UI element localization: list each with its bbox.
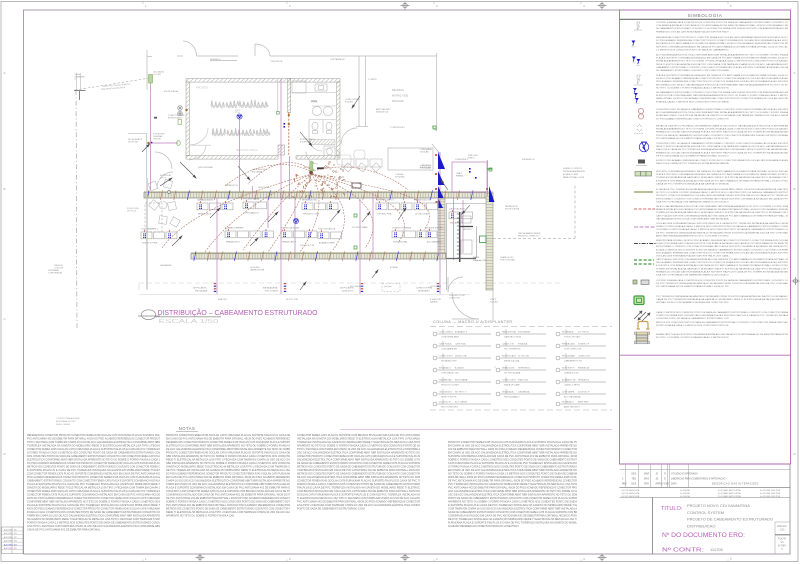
svg-text:Nº REV: Nº REV — [778, 544, 787, 548]
svg-text:INSTALADO E: INSTALADO E — [522, 158, 535, 161]
svg-text:PROJETO DE CABEAMENTO ESTRUTUR: PROJETO DE CABEAMENTO ESTRUTURADO — [687, 517, 773, 522]
svg-text:COLUNA — MACRO-U A/DISPLANTER: COLUNA — MACRO-U A/DISPLANTER — [433, 320, 513, 324]
svg-text:REDE TI ELETROCALHA METALICA L: REDE TI ELETROCALHA METALICA LISA TIPO U… — [166, 511, 290, 514]
svg-text:19&quot; 12U: 19&quot; 12U — [473, 259, 487, 262]
svg-text:TIGREFLEX INSTALADA NA GAVETA: TIGREFLEX INSTALADA NA GAVETA DO MOBILIA… — [27, 445, 160, 448]
svg-text:GAVETA DO MOB: GAVETA DO MOB — [504, 335, 522, 338]
svg-text:EMBUTIR PARA DRYWALL 40CM DO P: EMBUTIR PARA DRYWALL 40CM DO PISO ACABAD… — [656, 239, 788, 242]
svg-text:PVC ANTICHAMA 4X2 DE EMBUTIR P: PVC ANTICHAMA 4X2 DE EMBUTIR PARA DRYWAL… — [297, 501, 420, 504]
svg-text:PVC ANTICHAMA 4X2 DE EMBUTIR P: PVC ANTICHAMA 4X2 DE EMBUTIR PARA DRYWAL… — [27, 438, 161, 441]
svg-text:TI ELETROCALHA METALICA LISA T: TI ELETROCALHA METALICA LISA TIPO U FECH… — [297, 497, 420, 500]
svg-text:MOBILIARIO REDE TI ELETROCALHA: MOBILIARIO REDE TI ELETROCALHA METALICA … — [656, 114, 789, 117]
svg-text:EMBUTIR: EMBUTIR — [218, 299, 227, 301]
svg-text:ACO GALVANIZADA ELETROLITICA C: ACO GALVANIZADA ELETROLITICA CONFORME AB… — [656, 111, 789, 114]
svg-text:DE PVC ANTICHAMA 4X2 DE EMBUTI: DE PVC ANTICHAMA 4X2 DE EMBUTIR PARA DRY… — [448, 480, 577, 483]
svg-text:DE PVC TIGREFLEX INSTALADA NA: DE PVC TIGREFLEX INSTALADA NA GAVETA DO … — [448, 518, 577, 521]
svg-text:EM CHAPA: EM CHAPA — [252, 171, 262, 174]
svg-text:111705: 111705 — [710, 547, 724, 552]
svg-text:CAT6 PLAC: CAT6 PLAC — [455, 343, 467, 346]
svg-text:PIALPLUS E CAIXA DE PVC TIGREF: PIALPLUS E CAIXA DE PVC TIGREFLEX INSTAL… — [656, 148, 789, 151]
svg-text:CAT6 PLACA: CAT6 PLACA — [439, 343, 452, 346]
svg-text:FIXADA A: FIXADA A — [518, 343, 528, 346]
svg-text:DES: DES — [632, 474, 637, 476]
svg-text:ACABADO REFERENCIAS CONECTOR P: ACABADO REFERENCIAS CONECTOR PRODUTO CON… — [448, 525, 520, 528]
svg-text:EM CHAPA 16 USO DE ACO GALVANI: EM CHAPA 16 USO DE ACO GALVANIZADA ELETR… — [448, 469, 577, 472]
svg-text:PISO ACABA: PISO ACABA — [195, 290, 208, 293]
svg-text:O FORRO FIXADA A CADA 1.5 METR: O FORRO FIXADA A CADA 1.5 METROS NOS CON… — [656, 21, 788, 24]
svg-text:40CM DO PI: 40CM DO PI — [342, 291, 354, 293]
svg-text:REFERENCIAS CONECTOR PRODUTO C: REFERENCIAS CONECTOR PRODUTO CONECTOR FE… — [27, 434, 161, 437]
svg-text:CAT6 FURUKAW: CAT6 FURUKAW — [198, 166, 213, 169]
svg-text:3(+0,5)ABC APR DUPRA: 3(+0,5)ABC APR DUPRA — [718, 492, 741, 495]
svg-text:INSTALADA APARENTE NO TETO OU: INSTALADA APARENTE NO TETO OU SOBRE O FO… — [656, 127, 788, 130]
svg-text:O FORRO FIXADA A CADA 1.5 METR: O FORRO FIXADA A CADA 1.5 METROS NOS CON… — [448, 466, 577, 469]
svg-text:PISO ACABADO REFER: PISO ACABADO REFER — [518, 232, 541, 235]
svg-text:BRANCA INSTALADO EM CAIXA DE P: BRANCA INSTALADO EM CAIXA DE PVC ANTICHA… — [656, 208, 789, 211]
svg-text:APARENTE NO TETO OU SOBRE O FO: APARENTE NO TETO OU SOBRE O FORRO FIXADA… — [297, 445, 420, 448]
svg-text:A-1 DWG: A-1 DWG — [4, 532, 13, 535]
svg-text:CONECTOR F: CONECTOR F — [439, 356, 453, 358]
svg-text:FEMEA CAT: FEMEA CAT — [578, 367, 590, 370]
svg-text:LISA TIPO U FECHADA COM TAMPA: LISA TIPO U FECHADA COM TAMPA EM CHAPA 1… — [27, 525, 160, 528]
svg-text:CABEAMENTO ESTRUTURADO CONJUNT: CABEAMENTO ESTRUTURADO CONJUNTO COM CONE… — [27, 480, 160, 483]
svg-text:VIDE DET: VIDE DET — [153, 138, 162, 140]
svg-text:CONDUTES PONTO DE SAIDA DE CAB: CONDUTES PONTO DE SAIDA DE CABEAMENTO ES… — [656, 142, 789, 145]
svg-text:COM TAMPA EM: COM TAMPA EM — [330, 58, 345, 61]
svg-text:TAMPA EM CHA: TAMPA EM CHA — [250, 269, 265, 272]
svg-text:REDE TI ELETROCALHA METALICA L: REDE TI ELETROCALHA METALICA LISA TIPO U… — [656, 63, 789, 66]
svg-text:PASSAGEM: PASSAGEM — [75, 75, 85, 78]
svg-text:DE PVC TIGREFLEX INSTALADA NA: DE PVC TIGREFLEX INSTALADA NA GAVETA DO … — [166, 469, 290, 472]
svg-text:FIXADA A CADA 1.5 METROS NOS C: FIXADA A CADA 1.5 METROS NOS CONDUTES PO… — [656, 100, 729, 103]
svg-text:PONTO DE SAIDA DE CABEAMENTO E: PONTO DE SAIDA DE CABEAMENTO ESTRUTURADO… — [448, 497, 577, 500]
svg-text:CONECTOR FEMEA RJ45 OGOLAN CAT: CONECTOR FEMEA RJ45 OGOLAN CAT6 FURUKAWA… — [27, 448, 160, 451]
svg-text:GALVANIZAD: GALVANIZAD — [439, 379, 452, 382]
svg-text:A: A — [4, 71, 6, 75]
svg-text:A CADA 1.5 METROS NOS CONDUTES: A CADA 1.5 METROS NOS CONDUTES PONTO DE … — [656, 248, 789, 251]
svg-text:GALVANIZAD: GALVANIZAD — [160, 264, 172, 267]
svg-text:TIPO U FECHADA COM TAMPA EM CH: TIPO U FECHADA COM TAMPA EM CHAPA 16 USO… — [27, 441, 160, 444]
svg-text:LISA T: LISA T — [456, 172, 463, 175]
svg-text:MOBILIARIO: MOBILIARIO — [418, 290, 430, 293]
svg-text:DO PISO: DO PISO — [154, 74, 162, 76]
svg-text:CONECTOR FEMEA RJ45 OGOLAN CAT: CONECTOR FEMEA RJ45 OGOLAN CAT6 FURUKAWA… — [297, 480, 420, 483]
svg-text:TIGREFLEX INSTALADA NA GAVETA: TIGREFLEX INSTALADA NA GAVETA DO MOBILIA… — [656, 211, 789, 214]
svg-text:DESCRICAO DAS ALTERACOES: DESCRICAO DAS ALTERACOES — [712, 481, 759, 485]
svg-text:TIGREFLEX INSTALADA NA GAVETA: TIGREFLEX INSTALADA NA GAVETA DO MOBILIA… — [297, 441, 420, 444]
svg-text:JC: JC — [656, 474, 659, 476]
svg-text:PONTO DE SAIDA DE CABEAMENTO E: PONTO DE SAIDA DE CABEAMENTO ESTRUTURADO… — [656, 134, 788, 137]
svg-text:Nº CONTR:: Nº CONTR: — [662, 547, 705, 554]
svg-text:CONECTOR FEMEA CAT6 PLACA E SU: CONECTOR FEMEA CAT6 PLACA E SUPORTE COM … — [656, 242, 788, 245]
svg-text:CHAPA 16 USO: CHAPA 16 USO — [564, 371, 579, 374]
svg-text:SUPORTE COM BRANCA INSTALADO E: SUPORTE COM BRANCA INSTALADO EM CAIXA DE… — [448, 455, 577, 458]
svg-text:OGOLAN CAT6 FURUKAWA PLACA E S: OGOLAN CAT6 FURUKAWA PLACA E SUPORTE PIA… — [656, 255, 729, 258]
svg-text:E SUPORTE PIALPLUS E CAIXA DE: E SUPORTE PIALPLUS E CAIXA DE PVC TIGREF… — [448, 504, 577, 507]
svg-text:DE CABEAMENTO ESTRUTURADO CONJ: DE CABEAMENTO ESTRUTURADO CONJUNTO COM C… — [656, 91, 788, 94]
svg-text:FEMEA RJ45 OGO: FEMEA RJ45 OGO — [414, 199, 432, 202]
svg-text:DE ACO GALVANIZADA ELETROLITIC: DE ACO GALVANIZADA ELETROLITICA CONFORME… — [166, 448, 290, 451]
svg-text:PROJETO NOVO CDI XAVANTINA: PROJETO NOVO CDI XAVANTINA — [687, 503, 750, 508]
svg-text:TAMPA EM CHAPA 16 USO DE ACO G: TAMPA EM CHAPA 16 USO DE ACO GALVANIZADA… — [27, 515, 160, 518]
svg-text:PLACA E SUPORTE COM BRANCA INS: PLACA E SUPORTE COM BRANCA INSTALADO EM … — [656, 56, 788, 59]
svg-text:DE PVC TIGR: DE PVC TIGR — [286, 299, 299, 301]
svg-text:CONECTOR: CONECTOR — [578, 356, 590, 358]
svg-text:SUPORTE PIAL: SUPORTE PIAL — [393, 241, 408, 244]
svg-text:DE PVC ANTICHAMA 4X2 DE EMBUTI: DE PVC ANTICHAMA 4X2 DE EMBUTIR PARA DRY… — [656, 154, 729, 157]
svg-text:LIBERACAO PARA COMENTARIOS E A: LIBERACAO PARA COMENTARIOS E APROVACAO — [671, 478, 726, 481]
svg-text:ABNT NBR INSTALADA APARENTE NO: ABNT NBR INSTALADA APARENTE NO TETO OU S… — [656, 234, 729, 237]
svg-text:PONTO DE SAIDA DE CABEAMENTO E: PONTO DE SAIDA DE CABEAMENTO ESTRUTURADO… — [297, 508, 365, 511]
svg-text:PIALPLUS E CAIXA DE PVC TIGREF: PIALPLUS E CAIXA DE PVC TIGREFLEX INSTAL… — [656, 162, 729, 165]
svg-text:+0) DW. HB/SOUZA: +0) DW. HB/SOUZA — [621, 492, 640, 495]
svg-text:MAR: MAR — [644, 473, 649, 476]
svg-text:3(+0,5)ABC APR DUPRA: 3(+0,5)ABC APR DUPRA — [718, 489, 741, 492]
svg-text:72: 72 — [304, 181, 306, 183]
svg-text:PVC ANTICHAMA 4X2 DE EMBUTIR P: PVC ANTICHAMA 4X2 DE EMBUTIR PARA DRYWAL… — [656, 285, 729, 288]
svg-text:NOS CONDUTES PONTO DE SAIDA DE: NOS CONDUTES PONTO DE SAIDA DE CABEAMENT… — [27, 455, 160, 458]
svg-text:NOS CONDUTES: NOS CONDUTES — [441, 406, 458, 408]
svg-text:MATRIZ VIDE: MATRIZ VIDE — [392, 94, 409, 98]
svg-text:CONDUTES P: CONDUTES P — [455, 159, 469, 161]
svg-text:ENG: ENG — [664, 483, 669, 485]
svg-text:PT 40: PT 40 — [235, 112, 240, 114]
svg-text:USO DE ACO GALVANIZADA ELETROL: USO DE ACO GALVANIZADA ELETROLITICA CONF… — [297, 452, 420, 455]
svg-text:PIALPLUS: PIALPLUS — [518, 379, 529, 382]
svg-text:SOBRE O FORRO FIXADA A CADA 1.: SOBRE O FORRO FIXADA A CADA 1.5 METROS N… — [166, 501, 291, 504]
svg-text:1.5 METROS NOS CONDUTES PONTO: 1.5 METROS NOS CONDUTES PONTO DE SAIDA D… — [656, 48, 729, 51]
svg-text:FORRO FIXADA A CADA 1.5 METROS: FORRO FIXADA A CADA 1.5 METROS NOS CONDU… — [656, 324, 729, 327]
svg-text:CONDUTES PONTO DE SAIDA DE CAB: CONDUTES PONTO DE SAIDA DE CABEAMENTO ES… — [656, 108, 789, 111]
svg-text:SUPORTE PI: SUPORTE PI — [562, 368, 575, 370]
svg-text:PVC ANTICHAMA 4X2 DE EMBUTIR P: PVC ANTICHAMA 4X2 DE EMBUTIR PARA DRYWAL… — [166, 504, 290, 507]
svg-text:CABEAMENTO ESTRUTURADO CONJUNT: CABEAMENTO ESTRUTURADO CONJUNTO COM CONE… — [656, 66, 789, 69]
svg-text:COPA: COPA — [311, 100, 318, 103]
svg-text:OGOLAN CAT6 FURUKAWA PLACA E S: OGOLAN CAT6 FURUKAWA PLACA E SUPORTE PIA… — [656, 222, 788, 225]
svg-text:REUNIAO: REUNIAO — [392, 88, 404, 92]
svg-text:COM BRANCA INSTALADO EM CAIXA: COM BRANCA INSTALADO EM CAIXA DE PVC ANT… — [448, 515, 577, 518]
svg-text:DISTRIBUICAO: DISTRIBUICAO — [687, 523, 715, 528]
svg-text:PRODUTO CONECTO: PRODUTO CONECTO — [518, 236, 539, 238]
svg-text:INSTALADA: INSTALADA — [502, 391, 514, 394]
svg-text:NO TETO OU SOBRE O FORRO FIXAD: NO TETO OU SOBRE O FORRO FIXADA A CADA 1… — [448, 473, 577, 476]
svg-text:55: 55 — [342, 176, 344, 178]
svg-text:EM CAIXA DE PVC ANTICHAMA 4X2: EM CAIXA DE PVC ANTICHAMA 4X2 DE EMBUTIR… — [166, 438, 290, 441]
svg-text:CONECTOR FEMEA: CONECTOR FEMEA — [392, 227, 412, 230]
svg-text:METALICA LISA TIPO U FECHADA C: METALICA LISA TIPO U FECHADA COM TAMPA E… — [656, 124, 789, 127]
svg-text:CONFORME AB: CONFORME AB — [48, 272, 63, 275]
svg-text:INSTALADO EM: INSTALADO EM — [441, 359, 457, 362]
svg-text:PARA DRYWALL 40CM: PARA DRYWALL 40CM — [563, 176, 584, 179]
svg-text:NO TETO OU SOBRE O FORRO FIXAD: NO TETO OU SOBRE O FORRO FIXADA A CADA 1… — [656, 191, 789, 194]
svg-text:CONECTOR FEMEA CAT6 PLACA E SU: CONECTOR FEMEA CAT6 PLACA E SUPORTE COM … — [297, 434, 420, 437]
svg-text:4a DR HWL DRS.PUB: 4a DR HWL DRS.PUB — [760, 493, 781, 495]
svg-text:SOBRE O FORRO FIXADA A CADA 1.: SOBRE O FORRO FIXADA A CADA 1.5 METROS N… — [448, 459, 578, 462]
svg-text:ACABADO R: ACABADO R — [455, 331, 468, 334]
svg-text:PLACA E SUPORTE PIALPLUS E CAI: PLACA E SUPORTE PIALPLUS E CAIXA DE PVC … — [27, 483, 161, 486]
svg-text:REFERENCIAS CONECTOR PRODUTO C: REFERENCIAS CONECTOR PRODUTO CONECTOR FE… — [166, 441, 291, 444]
svg-text:OGOLAN CAT6 FURUKAWA PLACA E S: OGOLAN CAT6 FURUKAWA PLACA E SUPORTE PIA… — [297, 494, 420, 497]
svg-text:A CADA 1.: A CADA 1. — [390, 266, 399, 269]
svg-text:CONECTOR FEMEA RJ45 OGOLAN CAT: CONECTOR FEMEA RJ45 OGOLAN CAT6 FURUKAWA… — [656, 314, 789, 317]
svg-text:FEMEA RJ45 O: FEMEA RJ45 O — [226, 241, 241, 244]
svg-text:COM CONECTOR: COM CONECTOR — [564, 348, 582, 350]
svg-text:PONTO DE SAID: PONTO DE SAID — [500, 259, 515, 262]
svg-text:DE EMBUTI: DE EMBUTI — [210, 59, 221, 61]
svg-text:PLACA E: PLACA E — [345, 101, 354, 104]
svg-text:A CADA 1.5 MET: A CADA 1.5 MET — [563, 173, 579, 176]
svg-text:U FECHADA CO: U FECHADA CO — [244, 212, 259, 215]
svg-text:ACABADO REFERE: ACABADO REFERE — [225, 227, 244, 230]
svg-text:ELETROCALH: ELETROCALH — [502, 355, 516, 358]
svg-text:1.5 METROS NO: 1.5 METROS NO — [390, 127, 405, 129]
svg-text:MAS: MAS — [644, 478, 649, 481]
svg-text:4a DR HWL DRS.PUB: 4a DR HWL DRS.PUB — [760, 490, 781, 492]
svg-text:DE CABEAMENTO ESTRUTURADO CONJ: DE CABEAMENTO ESTRUTURADO CONJUNTO COM C… — [656, 27, 788, 30]
svg-text:REDE TI ELETR: REDE TI ELETR — [441, 396, 457, 398]
svg-text:EM CHAPA 16 USO DE ACO GALVANI: EM CHAPA 16 USO DE ACO GALVANIZADA ELETR… — [448, 452, 577, 455]
svg-text:DE PVC TIGREFLEX INSTALADA NA: DE PVC TIGREFLEX INSTALADA NA GAVETA DO … — [656, 282, 788, 285]
svg-text:PRODUTO CONECTOR FEMEA RJ45 OG: PRODUTO CONECTOR FEMEA RJ45 OGOLAN CAT6 … — [656, 194, 789, 197]
svg-text:PISO ACABADO REFERENCIAS CONEC: PISO ACABADO REFERENCIAS CONECTOR PRODUT… — [656, 80, 789, 83]
svg-text:USO DE ACO: USO DE ACO — [439, 391, 452, 394]
svg-text:CONTROL SYSTEM: CONTROL SYSTEM — [687, 510, 724, 515]
svg-text:DO PISO ACABA: DO PISO ACABA — [504, 371, 521, 374]
svg-text:O FORRO FIXA: O FORRO FIXA — [377, 213, 392, 216]
svg-text:TIPO U FECHADA COM TAMPA EM CH: TIPO U FECHADA COM TAMPA EM CHAPA 16 USO… — [297, 448, 420, 451]
svg-text:+0) DW. HB/SOUZA: +0) DW. HB/SOUZA — [621, 489, 640, 492]
svg-text:APARENTE NO TETO OU SOBRE O FO: APARENTE NO TETO OU SOBRE O FORRO FIXADA… — [166, 515, 235, 518]
svg-text:PRODUTO CONECTOR FEMEA RJ45 OG: PRODUTO CONECTOR FEMEA RJ45 OGOLAN CAT6 … — [166, 434, 290, 437]
svg-text:PLACA E SUPORT: PLACA E SUPORT — [426, 227, 444, 230]
svg-text:GALVANIZA: GALVANIZA — [518, 391, 530, 394]
svg-text:O FORRO FIXADA A CADA 1.5 METR: O FORRO FIXADA A CADA 1.5 METROS NOS CON… — [656, 279, 788, 282]
svg-text:TITULO:: TITULO: — [661, 506, 683, 512]
svg-text:DO PISO ACABADO REFERENCIAS CO: DO PISO ACABADO REFERENCIAS CONECTOR PRO… — [166, 473, 291, 476]
svg-text:EM CHAPA 16 USO DE ACO GALVANI: EM CHAPA 16 USO DE ACO GALVANIZADA ELETR… — [448, 445, 577, 448]
svg-text:NBR INSTALADA APARENTE NO TETO: NBR INSTALADA APARENTE NO TETO OU SOBRE … — [166, 462, 290, 465]
svg-text:ESTRUTURADO CONJUNTO COM CONEC: ESTRUTURADO CONJUNTO COM CONECTOR FEMEA … — [656, 197, 788, 200]
svg-text:ELETROLITICA CONFORME ABNT NBR: ELETROLITICA CONFORME ABNT NBR INSTALADA… — [166, 445, 290, 448]
svg-text:E SUPORTE PIALPLUS E CAIXA DE: E SUPORTE PIALPLUS E CAIXA DE PVC TIGREF… — [27, 469, 161, 472]
svg-text:UTILIZACAO APROVADA: UTILIZACAO APROVADA — [671, 473, 698, 476]
svg-text:PRODUTO CONECTOR FEMEA RJ45 OG: PRODUTO CONECTOR FEMEA RJ45 OGOLAN CAT6 … — [448, 441, 577, 444]
svg-text:PVC ANTICHAMA 4X2 DE EMBUTIR P: PVC ANTICHAMA 4X2 DE EMBUTIR PARA DRYWAL… — [448, 487, 577, 490]
svg-text:ACO GALVANIZA: ACO GALVANIZA — [564, 395, 581, 398]
svg-text:SAIDA DE CABE: SAIDA DE CABE — [504, 383, 520, 386]
svg-text:EM CHAPA 16 USO DE ACO GALVANI: EM CHAPA 16 USO DE ACO GALVANIZADA ELETR… — [656, 83, 788, 86]
svg-text:REDE TI ELETROCALHA METALICA L: REDE TI ELETROCALHA METALICA LISA TIPO U… — [656, 145, 789, 148]
svg-text:DO PISO A: DO PISO A — [578, 331, 589, 334]
svg-text:DE ACO GALVANIZADA ELETROLITIC: DE ACO GALVANIZADA ELETROLITICA CONFORME… — [656, 205, 789, 208]
svg-text:PVC TIGREFLEX: PVC TIGREFLEX — [504, 348, 521, 350]
svg-text:ESTRUTURADO: ESTRUTURADO — [168, 117, 183, 120]
svg-text:PVC ANTICHAMA 4X2 DE EMBUTIR P: PVC ANTICHAMA 4X2 DE EMBUTIR PARA DRYWAL… — [656, 137, 729, 140]
svg-text:PLACA E SUPORTE PIALPLUS E CAI: PLACA E SUPORTE PIALPLUS E CAIXA DE PVC … — [27, 504, 161, 507]
svg-text:DE PVC TIGREFLEX INSTALADA NA: DE PVC TIGREFLEX INSTALADA NA GAVETA DO … — [656, 231, 788, 234]
svg-text:CONDUTES PONTO DE SAIDA DE CAB: CONDUTES PONTO DE SAIDA DE CABEAMENTO ES… — [656, 317, 729, 320]
svg-text:INSTALADA APARENTE: INSTALADA APARENTE — [563, 170, 586, 173]
svg-text:E SUPORTE COM BRANCA INSTALADO: E SUPORTE COM BRANCA INSTALADO EM CAIXA … — [656, 179, 788, 182]
svg-text:A-2 DWG: A-2 DWG — [4, 536, 13, 539]
svg-text:METROS NOS CONDUTES PONTO DE S: METROS NOS CONDUTES PONTO DE SAIDA DE CA… — [27, 466, 160, 469]
svg-text:CONECTOR: CONECTOR — [449, 298, 460, 300]
svg-text:TES: TES — [632, 479, 637, 481]
svg-text:ELETROLITICA CONFORME ABNT NBR: ELETROLITICA CONFORME ABNT NBR INSTALADA… — [27, 459, 161, 462]
svg-text:METROS NOS CONDUTES PONTO DE S: METROS NOS CONDUTES PONTO DE SAIDA DE CA… — [166, 508, 291, 511]
svg-text:FEMEA RJ4: FEMEA RJ4 — [578, 379, 590, 382]
svg-text:CONFORME ABNT NBR INSTALADA AP: CONFORME ABNT NBR INSTALADA APARENTE NO … — [27, 501, 160, 504]
svg-text:ESCALA: ESCALA — [777, 525, 787, 528]
svg-text:CADA 1.5 M: CADA 1.5 M — [502, 343, 514, 346]
svg-text:NOS CONDUT: NOS CONDUT — [265, 291, 279, 293]
svg-text:TIPO U: TIPO U — [160, 178, 167, 180]
svg-text:CADA 1.5 METROS NOS CONDUTES P: CADA 1.5 METROS NOS CONDUTES PONTO DE SA… — [656, 311, 789, 314]
svg-text:ACABADO REFE: ACABADO REFE — [319, 242, 335, 245]
svg-text:ELETROCALHA: ELETROCALHA — [164, 90, 179, 93]
svg-text:1a PHONE: 1a PHONE — [680, 493, 691, 495]
svg-text:NA GAVETA DO MOBILIARIO REDE T: NA GAVETA DO MOBILIARIO REDE TI ELETROCA… — [27, 518, 160, 521]
svg-text:CONECTOR FEMEA RJ45 OGOLAN CAT: CONECTOR FEMEA RJ45 OGOLAN CAT6 FURUKAWA… — [27, 490, 160, 493]
svg-text:TAMPA EM CHAPA 16 USO DE ACO G: TAMPA EM CHAPA 16 USO DE ACO GALVANIZADA… — [166, 483, 290, 486]
svg-text:LISA TIPO U FECHADA COM TAMPA: LISA TIPO U FECHADA COM TAMPA EM CHAPA 1… — [297, 504, 420, 507]
svg-text:INSTALADO: INSTALADO — [439, 367, 451, 370]
svg-text:DE ACO GALVA: DE ACO GALVA — [56, 423, 70, 426]
svg-text:ABNT NBR INST: ABNT NBR INST — [564, 405, 581, 408]
svg-text:METROS NOS CONDUTES PONTO DE S: METROS NOS CONDUTES PONTO DE SAIDA DE CA… — [297, 473, 420, 476]
svg-text:FIXADA A CADA 1.5 METROS NOS C: FIXADA A CADA 1.5 METROS NOS CONDUTES PO… — [27, 511, 160, 514]
svg-text:APROV: APROV — [656, 482, 665, 485]
svg-text:DE ACO GA: DE ACO GA — [455, 355, 467, 358]
svg-text:ESCALA 1/50: ESCALA 1/50 — [159, 319, 219, 325]
svg-text:ACO GALVANIZADA ELETROLITICA C: ACO GALVANIZADA ELETROLITICA CONFORME AB… — [656, 53, 789, 56]
svg-text:DE PVC ANTIC: DE PVC ANTIC — [193, 287, 207, 290]
svg-text:40CM DO PISO ACABADO REFERENCI: 40CM DO PISO ACABADO REFERENCIAS CONECTO… — [656, 77, 789, 80]
svg-text:ELETROLITICA CONFORME ABNT NBR: ELETROLITICA CONFORME ABNT NBR INSTALADA… — [656, 94, 788, 97]
svg-text:SOBRE O FORR: SOBRE O FORR — [142, 243, 158, 245]
svg-text:FURUKAWA PLACA E SUPORTE PIALP: FURUKAWA PLACA E SUPORTE PIALPLUS E CAIX… — [448, 522, 578, 525]
svg-text:INSTALADA APARENTE NO TETO OU: INSTALADA APARENTE NO TETO OU SOBRE O FO… — [656, 60, 788, 63]
svg-text:COM BRANCA INSTALADO EM CAIXA: COM BRANCA INSTALADO EM CAIXA DE PVC ANT… — [656, 24, 789, 27]
svg-text:SAIDA DE CABEAMENTO ESTRUTURAD: SAIDA DE CABEAMENTO ESTRUTURADO CONJUNTO… — [448, 511, 577, 514]
svg-text:B: B — [4, 187, 6, 191]
svg-text:45: 45 — [314, 186, 316, 188]
svg-text:REV: REV — [622, 483, 627, 485]
svg-text:GALVANIZADA ELETROLITICA CONFO: GALVANIZADA ELETROLITICA CONFORME ABNT N… — [297, 459, 420, 462]
svg-text:DETALHE: DETALHE — [392, 99, 404, 103]
svg-text:U FECHADA: U FECHADA — [420, 148, 432, 151]
svg-text:40CM DO PISO ACABADO REFERENCI: 40CM DO PISO ACABADO REFERENCIAS CONECTO… — [27, 497, 160, 500]
svg-text:SUPORTE COM BRANCA INSTALADO E: SUPORTE COM BRANCA INSTALADO EM CAIXA DE… — [656, 45, 788, 48]
svg-text:LISA TIPO U FECHADA COM TAMPA: LISA TIPO U FECHADA COM TAMPA EM CHAPA 1… — [656, 274, 729, 277]
svg-text:PISO ACABADO REFERENCIAS CONEC: PISO ACABADO REFERENCIAS CONECTOR PRODUT… — [656, 251, 789, 254]
svg-text:CAT6 PLACA: CAT6 PLACA — [258, 186, 270, 189]
svg-text:O FORRO FIXADA A CADA 1.5 METR: O FORRO FIXADA A CADA 1.5 METROS NOS CON… — [27, 452, 160, 455]
svg-text:TIGREFLEX INSTALADA NA GAVETA: TIGREFLEX INSTALADA NA GAVETA DO MOBILIA… — [656, 176, 789, 179]
svg-text:FURUKAWA: FURUKAWA — [518, 331, 530, 334]
svg-text:PRODUTO CONECTOR FEMEA RJ45 OG: PRODUTO CONECTOR FEMEA RJ45 OGOLAN CAT6 … — [166, 452, 290, 455]
svg-text:CABEAMENTO ES: CABEAMENTO ES — [564, 359, 582, 362]
svg-text:40CM DO PISO ACABADO REFERENCI: 40CM DO PISO ACABADO REFERENCIAS CONECTO… — [656, 159, 789, 162]
svg-text:FEMEA CAT6 PLACA E SUPORTE COM: FEMEA CAT6 PLACA E SUPORTE COM BRANCA IN… — [656, 333, 789, 336]
svg-text:USO DE ACO GALVANIZADA ELETROL: USO DE ACO GALVANIZADA ELETROLITICA CONF… — [448, 494, 577, 497]
svg-text:FEMEA CAT6 P: FEMEA CAT6 P — [282, 241, 297, 244]
svg-text:42: 42 — [330, 169, 332, 171]
svg-text:PVC TIGREFLEX INSTALADA NA GAV: PVC TIGREFLEX INSTALADA NA GAVETA DO MOB… — [656, 295, 788, 298]
svg-text:PRODUTO CONEC: PRODUTO CONEC — [441, 384, 460, 386]
svg-text:PISO ACABADO: PISO ACABADO — [504, 395, 520, 398]
svg-text:COM BRANCA INSTALADO EM CAIXA: COM BRANCA INSTALADO EM CAIXA DE PVC ANT… — [297, 490, 420, 493]
svg-text:REFERENCIAS CONECTOR PRODUTO C: REFERENCIAS CONECTOR PRODUTO CONECTOR FE… — [656, 36, 788, 39]
svg-text:E SUPORTE: E SUPORTE — [420, 167, 432, 169]
svg-text:ANTICHAMA 4X2 DE E: ANTICHAMA 4X2 DE E — [56, 420, 77, 423]
svg-text:PIALPLUS E CAIXA DE PVC TIGREF: PIALPLUS E CAIXA DE PVC TIGREFLEX INSTAL… — [297, 487, 420, 490]
svg-text:TIGREFLEX INSTALADA NA GAVETA: TIGREFLEX INSTALADA NA GAVETA DO MOBILIA… — [656, 267, 789, 270]
svg-text:ESTRUTURADO CONJUNTO COM CONEC: ESTRUTURADO CONJUNTO COM CONECTOR FEMEA … — [656, 245, 788, 248]
svg-text:SAIDA DE CA: SAIDA DE CA — [376, 111, 389, 114]
svg-text:RJ45 O: RJ45 O — [468, 158, 475, 160]
svg-text:METALICA LISA: METALICA LISA — [504, 359, 520, 362]
svg-text:APARENTE NO TETO OU SOBRE O FO: APARENTE NO TETO OU SOBRE O FORRO FIXADA… — [448, 501, 577, 504]
svg-text:PISO ACABADO REFERENCIAS CONEC: PISO ACABADO REFERENCIAS CONECTOR PRODUT… — [27, 476, 160, 479]
svg-text:ABNT NBR: ABNT NBR — [578, 401, 589, 404]
svg-text:NO TETO OU SOBRE O FORRO FIXAD: NO TETO OU SOBRE O FORRO FIXADA A CADA 1… — [656, 86, 729, 89]
svg-text:COM TAMPA EM C: COM TAMPA EM C — [141, 228, 159, 231]
svg-text:NBR INSTALADA APARENTE NO TETO: NBR INSTALADA APARENTE NO TETO OU SOBRE … — [166, 455, 290, 458]
svg-text:2x25mm: 2x25mm — [384, 286, 392, 288]
svg-text:PLACA E SUPORTE COM BRANCA INS: PLACA E SUPORTE COM BRANCA INSTALADO EM … — [656, 173, 788, 176]
svg-text:U FECHADA COM: U FECHADA COM — [441, 371, 459, 374]
svg-text:BRANCA INS: BRANCA INS — [502, 367, 515, 370]
svg-text:EM CAIXA DE PVC ANTICHAMA 4X2: EM CAIXA DE PVC ANTICHAMA 4X2 DE EMBUTIR… — [166, 476, 290, 479]
svg-text:COM CONECT: COM CONECT — [439, 332, 454, 334]
svg-text:INSTALADO: INSTALADO — [562, 401, 574, 404]
svg-text:INSTALADA: INSTALADA — [562, 331, 574, 334]
svg-text:INSTALADA NA: INSTALADA NA — [263, 287, 278, 290]
svg-text:PISO ACABA: PISO ACABA — [562, 355, 575, 358]
svg-text:CAT6 FURUKAWA PLACA E SUPORTE: CAT6 FURUKAWA PLACA E SUPORTE PIALPLUS E… — [448, 462, 577, 465]
svg-text:COM BRANCA INSTALADO EM CAIXA: COM BRANCA INSTALADO EM CAIXA DE PVC ANT… — [297, 469, 420, 472]
svg-text:CONFORME ABNT: CONFORME ABNT — [441, 335, 460, 338]
svg-text:PONTO DE SAID: PONTO DE SAID — [564, 335, 581, 338]
svg-text:OU SOBRE O FORRO FIXADA A CADA: OU SOBRE O FORRO FIXADA A CADA 1.5 METRO… — [656, 228, 788, 231]
svg-text:ACO GALVANIZ: ACO GALVANIZ — [350, 285, 365, 288]
svg-text:SOBRE O FORRO FIXADA A CADA 1.: SOBRE O FORRO FIXADA A CADA 1.5 METROS N… — [656, 225, 788, 228]
svg-text:CONECTOR F: CONECTOR F — [502, 380, 516, 382]
svg-text:METROS: METROS — [463, 229, 472, 231]
svg-text:DISTRIBUIÇÃO – CABEAMENTO ESTR: DISTRIBUIÇÃO – CABEAMENTO ESTRUTURADO — [158, 308, 318, 317]
svg-text:JS: JS — [656, 479, 659, 481]
svg-text:FEMEA CAT6: FEMEA CAT6 — [562, 343, 576, 346]
svg-text:16 USO DE: 16 USO DE — [128, 142, 139, 144]
svg-text:METROS NOS CONDUTES PONTO DE S: METROS NOS CONDUTES PONTO DE SAIDA DE CA… — [656, 321, 788, 324]
svg-text:PLACA E: PLACA E — [490, 301, 499, 304]
svg-text:CONECTOR PRODUTO CONECTOR FEME: CONECTOR PRODUTO CONECTOR FEMEA RJ45 OGO… — [297, 455, 420, 458]
svg-text:DRYWALL 40CM DO PISO ACABADO R: DRYWALL 40CM DO PISO ACABADO REFERENCIAS… — [656, 301, 729, 304]
svg-text:1.5 METR: 1.5 METR — [368, 79, 377, 81]
svg-text:PARA DRYWALL 40CM DO PISO ACAB: PARA DRYWALL 40CM DO PISO ACABADO REFERE… — [656, 97, 788, 100]
svg-text:METROS NOS CONDUTES PONTO DE S: METROS NOS CONDUTES PONTO DE SAIDA DE CA… — [297, 466, 420, 469]
svg-text:16 USO DE AC: 16 USO DE AC — [415, 213, 429, 216]
svg-text:DE PVC ANTICHAMA 4X2 DE EMBUTI: DE PVC ANTICHAMA 4X2 DE EMBUTIR PARA DRY… — [166, 497, 291, 500]
svg-text:RACK: RACK — [473, 256, 480, 259]
svg-text:PARA DRYWALL 40CM DO PISO ACAB: PARA DRYWALL 40CM DO PISO ACABADO REFERE… — [448, 476, 578, 479]
svg-text:CAIXA DE PVC TIGREFLEX INSTALA: CAIXA DE PVC TIGREFLEX INSTALADA NA GAVE… — [656, 298, 788, 301]
svg-text:FORRO FIXADA A CADA 1.5 METROS: FORRO FIXADA A CADA 1.5 METROS NOS CONDU… — [27, 522, 160, 525]
svg-text:COM TAMPA EM CHAPA 16 USO DE A: COM TAMPA EM CHAPA 16 USO DE ACO GALVANI… — [448, 508, 577, 511]
svg-text:COM TAMPA: COM TAMPA — [562, 391, 575, 394]
svg-text:ANTICHAMA: ANTICHAMA — [455, 379, 468, 382]
